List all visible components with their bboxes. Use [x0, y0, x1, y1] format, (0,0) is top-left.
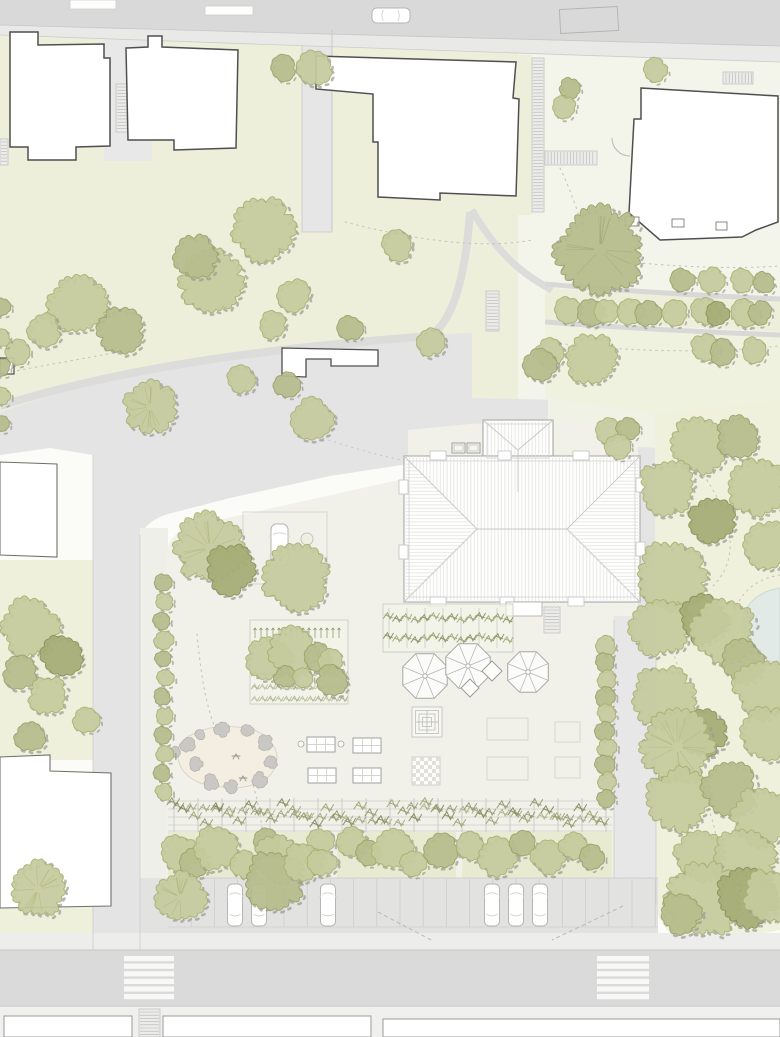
parasol-pole	[526, 670, 530, 674]
checker-cell	[416, 769, 420, 773]
tree	[554, 296, 580, 323]
car-mirror	[506, 895, 508, 897]
car-mirror	[335, 895, 337, 897]
chair	[338, 741, 344, 747]
parasol-pole	[423, 674, 427, 678]
checker-cell	[424, 761, 428, 765]
crosswalk-stripe	[124, 956, 174, 961]
building-left-mid	[0, 462, 57, 557]
crosswalk-stripe	[597, 964, 649, 969]
rooflight-rect	[70, 0, 116, 9]
shrub	[153, 764, 170, 781]
checker-cell	[416, 777, 420, 781]
building-entrance-tab	[716, 222, 727, 230]
checker-cell	[424, 777, 428, 781]
tree	[28, 677, 65, 714]
street-bottom	[0, 950, 780, 1007]
car-mirror	[225, 895, 227, 897]
checker-cell	[412, 765, 416, 769]
chair	[298, 741, 304, 747]
building-top-right	[629, 88, 778, 240]
car-body	[533, 884, 548, 926]
vine-pergola-plot	[383, 604, 513, 652]
checker-cell	[424, 769, 428, 773]
roof-dormer	[573, 451, 589, 460]
tree	[3, 655, 37, 689]
checker-cell	[432, 761, 436, 765]
crosswalk-stripe	[124, 994, 174, 999]
parked-car	[482, 884, 501, 926]
stairs	[139, 1009, 160, 1037]
play-boulder	[258, 735, 272, 751]
roof-dormer	[498, 451, 511, 460]
car-mirror	[288, 535, 290, 537]
checker-cell	[432, 777, 436, 781]
checker-cell	[432, 769, 436, 773]
shrub	[154, 651, 171, 667]
checker-cell	[412, 781, 416, 785]
crosswalk-stripe	[124, 971, 174, 976]
checker-cell	[420, 765, 424, 769]
parasol-pole	[466, 664, 470, 668]
building-upper-left-1	[10, 32, 110, 160]
checker-cell	[428, 773, 432, 777]
tree	[594, 299, 618, 323]
crosswalk-stripe	[597, 971, 649, 976]
car-mirror	[530, 895, 532, 897]
car-mirror	[523, 895, 525, 897]
car-body	[321, 884, 336, 926]
roof-dormer	[568, 597, 584, 606]
crosswalk-stripe	[597, 994, 649, 999]
checker-cell	[428, 757, 432, 761]
building-upper-left-2	[126, 36, 238, 150]
checker-cell	[428, 781, 432, 785]
shrub	[156, 708, 173, 725]
stairs	[545, 151, 597, 165]
crosswalk-stripe	[597, 986, 649, 991]
tree	[730, 268, 753, 293]
crosswalk-stripe	[597, 956, 649, 961]
street-car	[372, 8, 410, 23]
car-mirror	[482, 895, 484, 897]
car-mirror	[269, 535, 271, 537]
tree	[728, 458, 780, 517]
sidewalk-bottom	[0, 933, 780, 950]
roof-dormer	[430, 451, 446, 460]
building-entrance-tab	[672, 219, 684, 227]
rooflight-rect	[205, 6, 253, 15]
roof-dormer	[399, 480, 408, 494]
crosswalk-stripe	[124, 979, 174, 984]
parked-car	[506, 884, 525, 926]
crosswalk-stripe	[597, 979, 649, 984]
checker-cell	[436, 781, 440, 785]
shrub	[156, 745, 174, 762]
checker-cell	[420, 757, 424, 761]
checker-cell	[436, 773, 440, 777]
car-body	[228, 884, 243, 926]
crosswalk-stripe	[124, 986, 174, 991]
checker-cell	[420, 781, 424, 785]
car-mirror	[318, 895, 320, 897]
shrub	[156, 593, 173, 610]
car-mirror	[242, 895, 244, 897]
tree	[662, 300, 687, 327]
planter-circle	[301, 533, 313, 545]
checker-cell	[416, 761, 420, 765]
car-body	[485, 884, 500, 926]
site-plan-canvas	[0, 0, 780, 1037]
crosswalk-stripe	[124, 964, 174, 969]
shrub	[154, 574, 172, 591]
site-plan	[0, 0, 780, 1037]
car-mirror	[547, 895, 549, 897]
car-body	[372, 8, 410, 23]
shrub	[595, 653, 614, 673]
roof-dormer	[636, 542, 645, 556]
building-bottom-row-2	[163, 1016, 371, 1037]
shrub	[154, 727, 172, 745]
car-body	[509, 884, 524, 926]
tree	[640, 460, 693, 517]
checker-cell	[420, 773, 424, 777]
checker-cell	[436, 757, 440, 761]
parked-car	[530, 884, 549, 926]
checker-cell	[412, 773, 416, 777]
parked-car	[225, 884, 244, 926]
checker-cell	[428, 765, 432, 769]
checker-cell	[412, 757, 416, 761]
building-bottom-row-1	[4, 1016, 132, 1037]
building-bottom-row-3	[383, 1019, 780, 1037]
roof-dormer	[399, 545, 408, 559]
checker-cell	[436, 765, 440, 769]
car-mirror	[499, 895, 501, 897]
parked-car	[318, 884, 337, 926]
